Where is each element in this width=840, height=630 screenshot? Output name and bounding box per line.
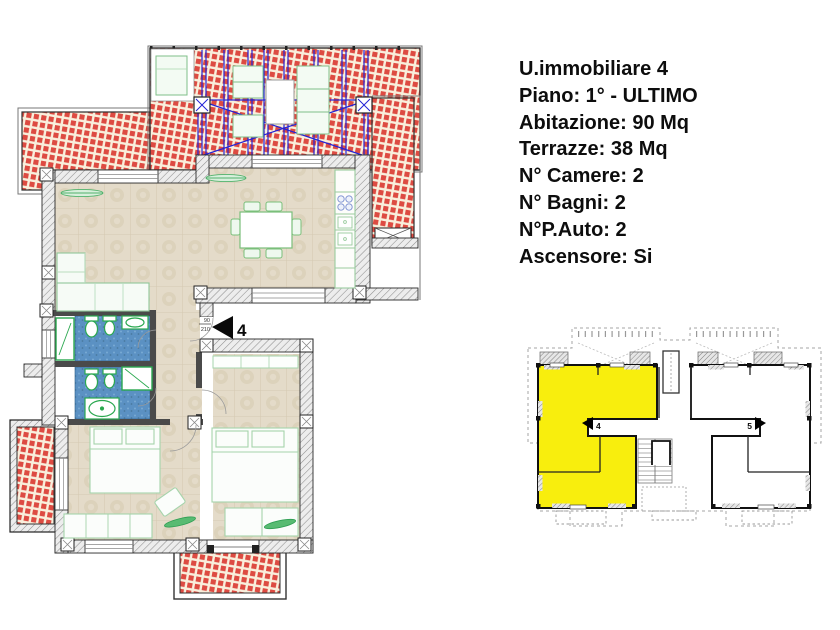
floorplan-page: 4 90 210: [0, 0, 840, 630]
key-plan-unit-4-label: 4: [596, 421, 601, 431]
info-line-unit: U.immobiliare 4: [519, 56, 698, 83]
info-line-elevator: Ascensore: Si: [519, 244, 698, 271]
listing-info-panel: U.immobiliare 4 Piano: 1° - ULTIMO Abita…: [519, 56, 698, 270]
lower-balconies: [556, 511, 792, 524]
entrance-unit-label: 4: [237, 321, 247, 340]
bed-1: [90, 427, 160, 493]
key-plan-elevator: [652, 441, 670, 465]
bed-2: [212, 428, 298, 502]
terrace-bedroom: [10, 420, 60, 532]
info-line-area: Abitazione: 90 Mq: [519, 110, 698, 137]
svg-text:210: 210: [201, 327, 210, 333]
info-line-baths: N° Bagni: 2: [519, 190, 698, 217]
info-line-floor: Piano: 1° - ULTIMO: [519, 83, 698, 110]
key-plan-unit-5-label: 5: [747, 421, 752, 431]
kitchen-counter: [335, 170, 355, 288]
key-plan-unit-4: [538, 365, 657, 508]
info-line-parking: N°P.Auto: 2: [519, 217, 698, 244]
wardrobe-1: [64, 514, 152, 538]
corridor-floor: [156, 310, 202, 425]
terrace-door: [207, 540, 259, 553]
terrace-bottom: [174, 547, 286, 599]
floorplan-drawing: 4 90 210: [0, 0, 840, 630]
info-line-terraces: Terrazze: 38 Mq: [519, 136, 698, 163]
closet-2: [213, 356, 298, 368]
terrace-right: [372, 96, 420, 300]
key-plan-unit-5: [691, 365, 810, 508]
svg-text:90: 90: [204, 318, 210, 324]
info-line-rooms: N° Camere: 2: [519, 163, 698, 190]
key-plan: 4 5: [528, 328, 821, 526]
entrance-arrow: 4: [212, 316, 247, 340]
